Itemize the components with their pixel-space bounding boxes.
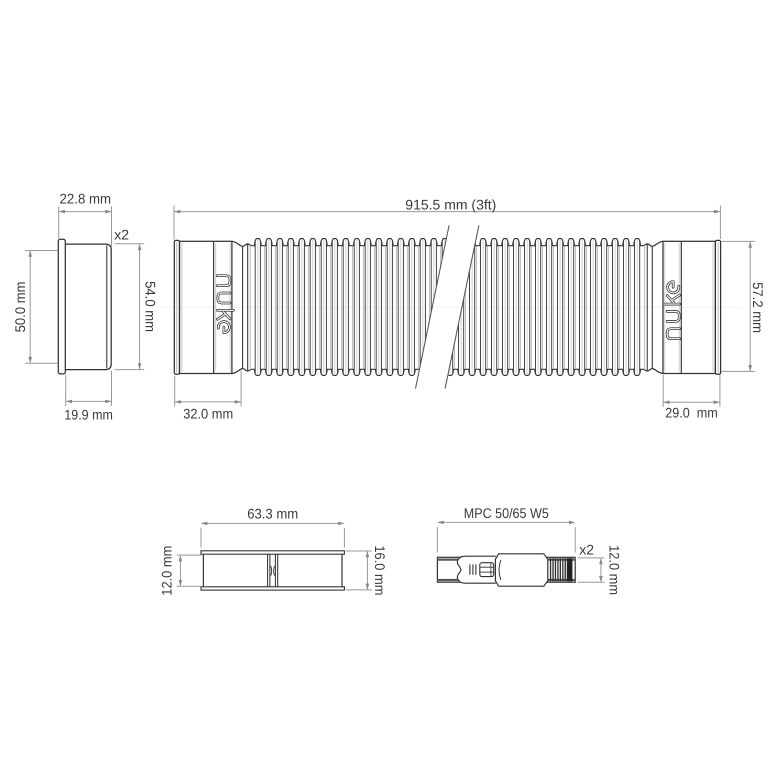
svg-text:12.0 mm: 12.0 mm [607,545,623,595]
svg-text:22.8 mm: 22.8 mm [60,191,112,207]
svg-text:63.3 mm: 63.3 mm [247,505,298,521]
svg-text:x2: x2 [114,226,129,242]
svg-text:915.5 mm (3ft): 915.5 mm (3ft) [405,196,496,212]
svg-text:57.2 mm: 57.2 mm [750,282,766,333]
svg-text:19.9 mm: 19.9 mm [64,407,113,423]
svg-text:12.0 mm: 12.0 mm [159,546,175,596]
svg-text:x2: x2 [579,542,594,558]
svg-text:54.0 mm: 54.0 mm [143,281,159,332]
svg-text:32.0 mm: 32.0 mm [183,406,233,422]
svg-text:29.0 mm: 29.0 mm [665,404,718,420]
svg-text:MPC 50/65 W5: MPC 50/65 W5 [464,505,549,521]
svg-text:50.0 mm: 50.0 mm [12,281,28,332]
svg-text:16.0 mm: 16.0 mm [372,545,388,595]
